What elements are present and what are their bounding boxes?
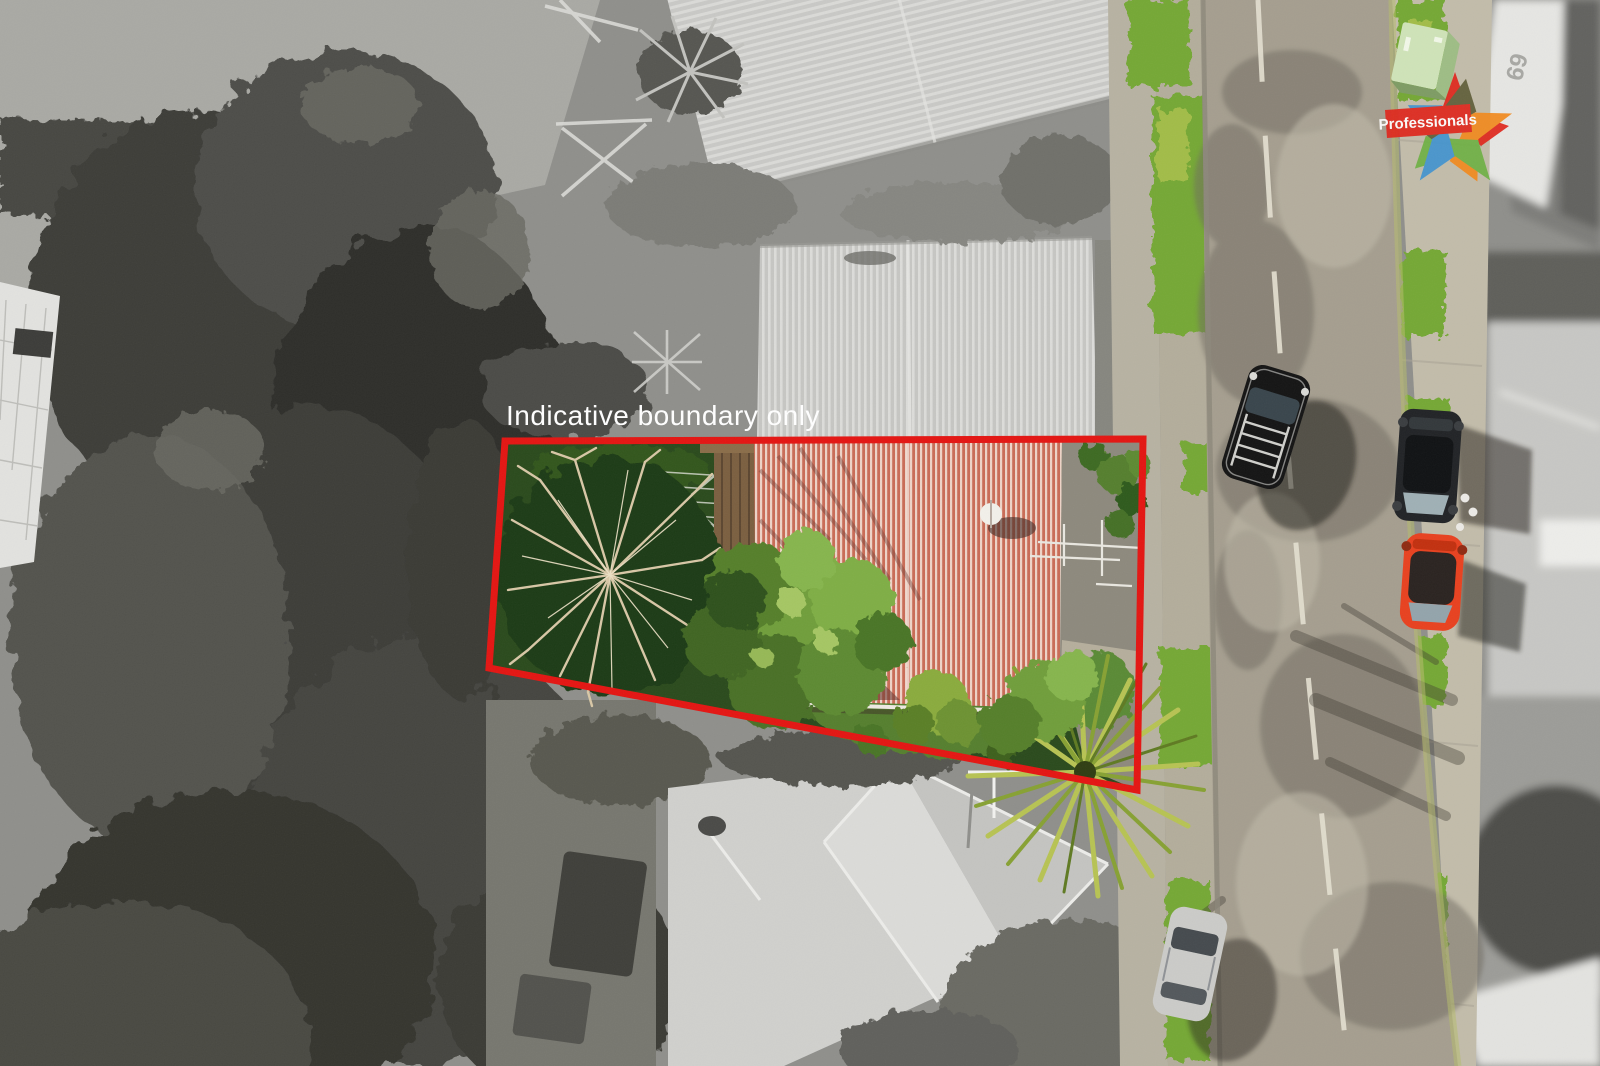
photo-grain-overlay — [0, 0, 1600, 1066]
aerial-property-photo: 69 — [0, 0, 1600, 1066]
